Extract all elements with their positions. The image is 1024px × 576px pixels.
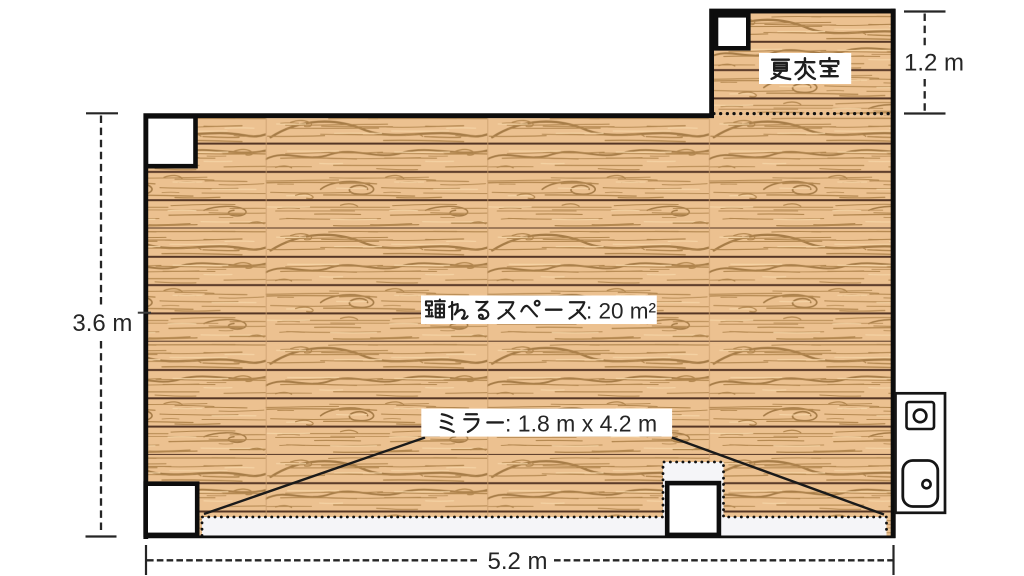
svg-text:: 20 m²: : 20 m² (586, 298, 657, 323)
svg-text:: 1.8 m x 4.2 m: : 1.8 m x 4.2 m (505, 411, 657, 437)
svg-text:5.2 m: 5.2 m (487, 548, 547, 575)
svg-text:3.6 m: 3.6 m (72, 310, 132, 337)
svg-text:1.2 m: 1.2 m (904, 49, 964, 76)
